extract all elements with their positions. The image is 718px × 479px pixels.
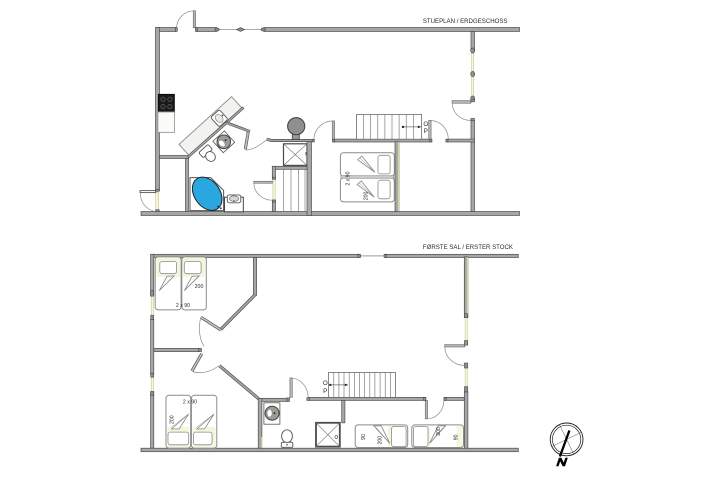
svg-text:FØRSTE SAL / ERSTER STOCK: FØRSTE SAL / ERSTER STOCK — [423, 244, 513, 251]
svg-text:P: P — [424, 128, 428, 135]
svg-text:200: 200 — [378, 436, 384, 445]
svg-text:STUEPLAN / ERDGESCHOSS: STUEPLAN / ERDGESCHOSS — [423, 18, 508, 25]
svg-text:90: 90 — [453, 434, 459, 440]
svg-text:2 x 90: 2 x 90 — [176, 303, 190, 309]
svg-text:P: P — [323, 388, 327, 395]
svg-text:90: 90 — [361, 434, 367, 440]
svg-text:2 x 90: 2 x 90 — [346, 171, 352, 185]
svg-text:2 x 90: 2 x 90 — [183, 399, 197, 405]
svg-text:200: 200 — [195, 284, 204, 290]
svg-text:200: 200 — [170, 415, 176, 424]
svg-text:200: 200 — [436, 427, 442, 436]
svg-text:O: O — [423, 121, 428, 128]
svg-text:200: 200 — [363, 191, 369, 200]
svg-text:O: O — [323, 380, 328, 387]
